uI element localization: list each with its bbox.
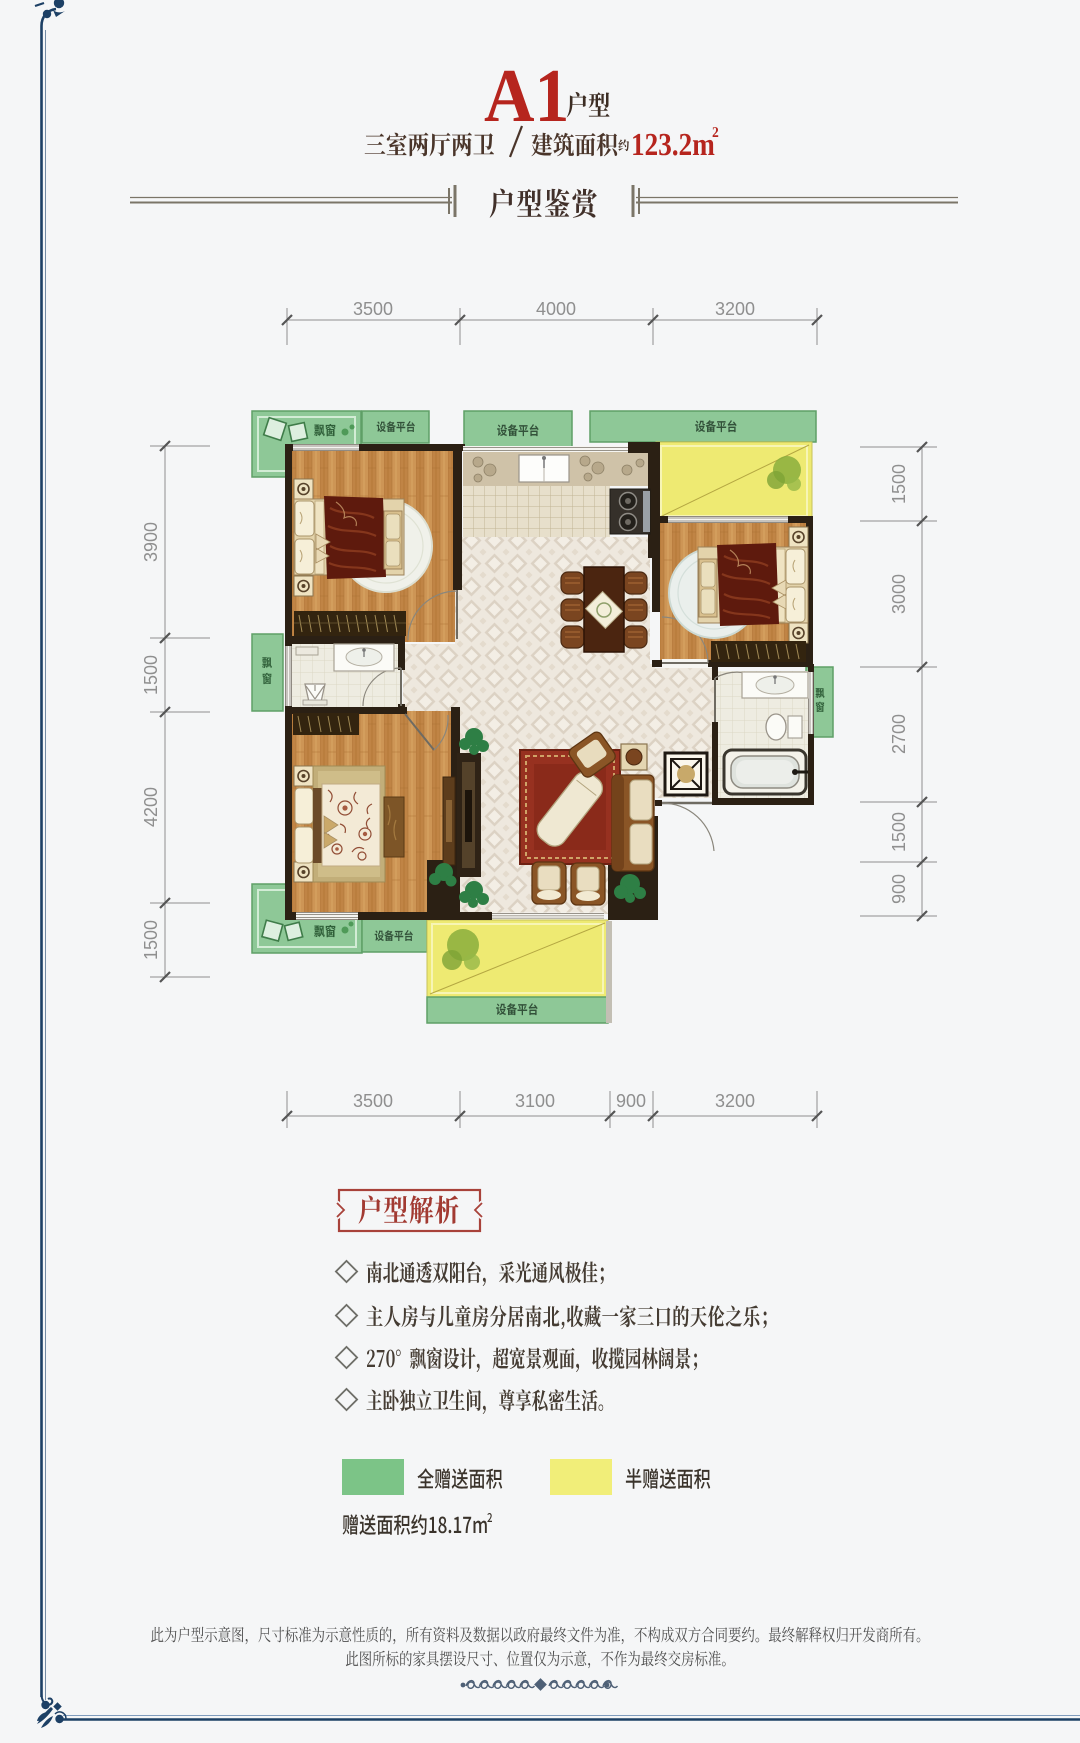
svg-text:1500: 1500: [141, 655, 161, 695]
svg-text:3100: 3100: [515, 1091, 555, 1111]
svg-text:900: 900: [889, 874, 909, 904]
svg-text:1500: 1500: [141, 920, 161, 960]
svg-text:1500: 1500: [889, 812, 909, 852]
svg-text:1500: 1500: [889, 464, 909, 504]
svg-text:3900: 3900: [141, 522, 161, 562]
svg-text:900: 900: [616, 1091, 646, 1111]
svg-text:3200: 3200: [715, 299, 755, 319]
svg-text:3500: 3500: [353, 1091, 393, 1111]
svg-text:3200: 3200: [715, 1091, 755, 1111]
svg-text:3500: 3500: [353, 299, 393, 319]
svg-text:2700: 2700: [889, 714, 909, 754]
svg-text:4000: 4000: [536, 299, 576, 319]
svg-text:3000: 3000: [889, 574, 909, 614]
svg-text:4200: 4200: [141, 787, 161, 827]
